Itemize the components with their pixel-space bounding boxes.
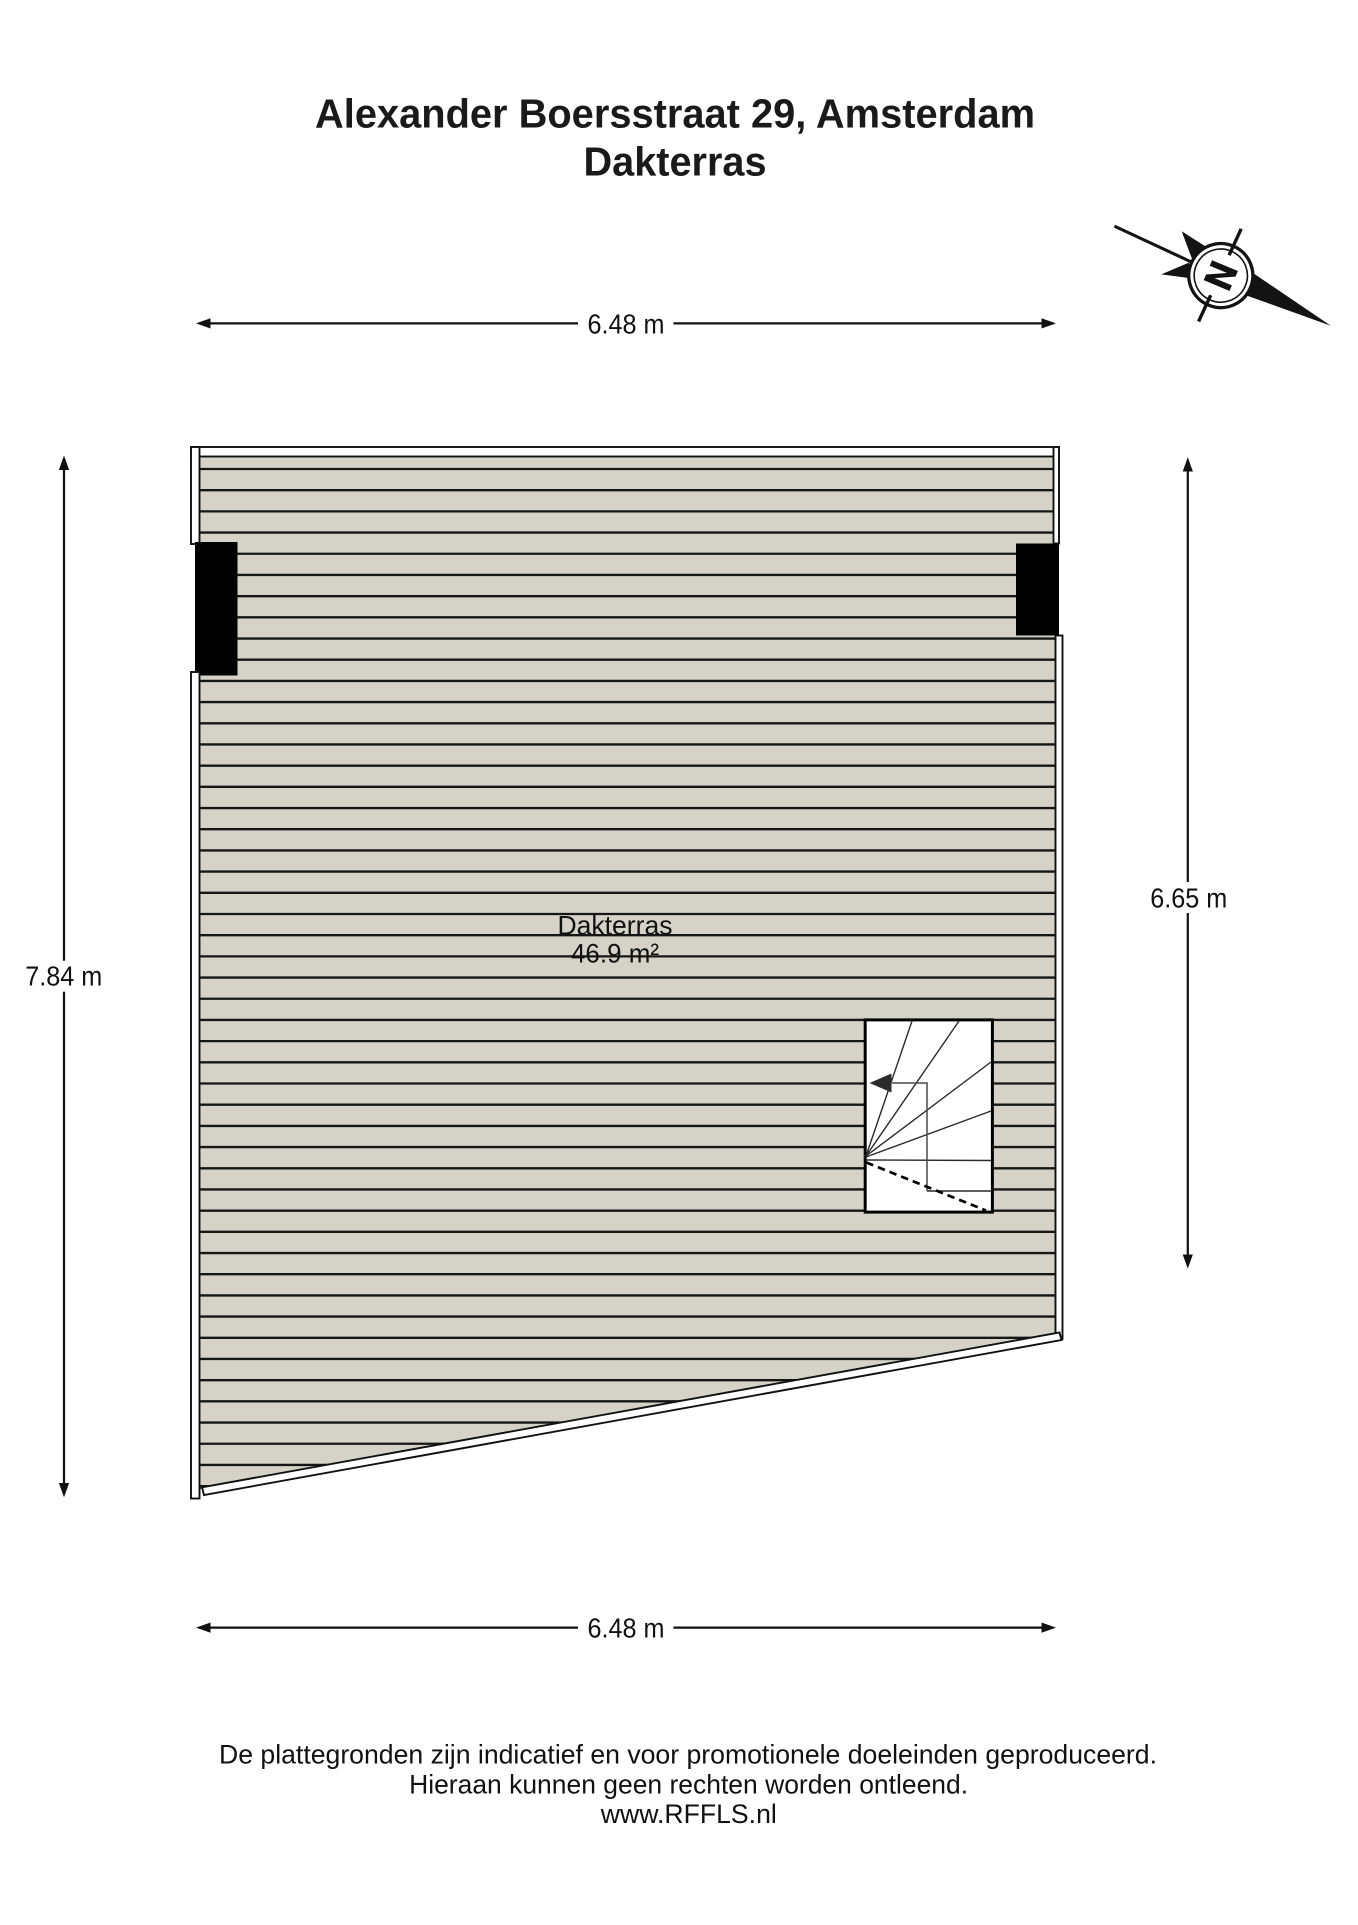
svg-text:Dakterras: Dakterras bbox=[558, 911, 673, 941]
svg-text:6.65 m: 6.65 m bbox=[1150, 883, 1227, 914]
svg-text:46.9 m²: 46.9 m² bbox=[571, 938, 659, 968]
svg-text:7.84 m: 7.84 m bbox=[25, 961, 102, 992]
svg-text:6.48 m: 6.48 m bbox=[588, 309, 665, 340]
svg-text:6.48 m: 6.48 m bbox=[588, 1613, 665, 1644]
svg-text:www.RFFLS.nl: www.RFFLS.nl bbox=[600, 1799, 777, 1829]
svg-text:Hieraan kunnen geen rechten wo: Hieraan kunnen geen rechten worden ontle… bbox=[409, 1769, 968, 1799]
svg-text:De plattegronden zijn indicati: De plattegronden zijn indicatief en voor… bbox=[219, 1739, 1157, 1769]
svg-text:Alexander Boersstraat 29, Amst: Alexander Boersstraat 29, Amsterdam bbox=[315, 91, 1035, 137]
svg-text:Dakterras: Dakterras bbox=[584, 139, 767, 185]
